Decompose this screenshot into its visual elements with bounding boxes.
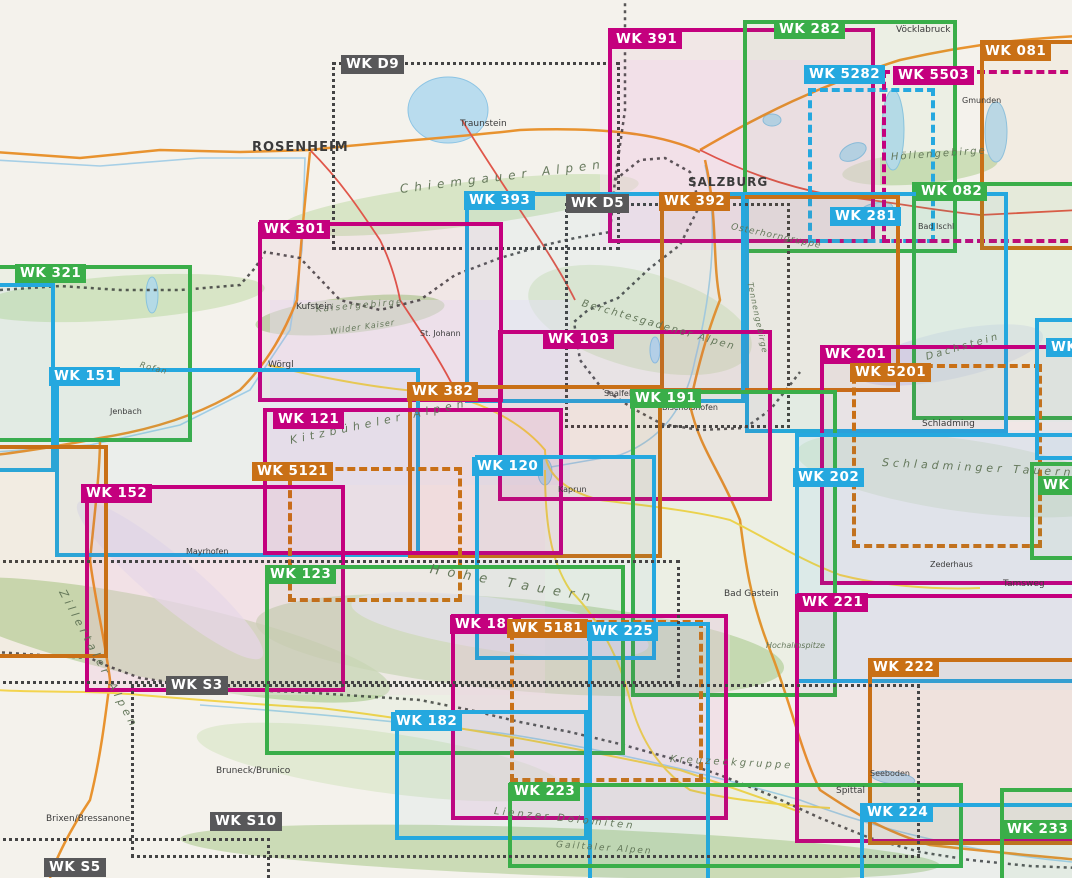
sheet-label-wk-121[interactable]: WK 121 xyxy=(273,410,344,429)
sheet-label-wk-151[interactable]: WK 151 xyxy=(49,367,120,386)
sheet-label-wk-223[interactable]: WK 223 xyxy=(509,782,580,801)
sheet-label-wk-392[interactable]: WK 392 xyxy=(659,192,730,211)
sheet-label-wk-d9[interactable]: WK D9 xyxy=(341,55,404,74)
sheet-label-wk-182[interactable]: WK 182 xyxy=(391,712,462,731)
city-label-jenbach: Jenbach xyxy=(110,407,142,416)
sheet-label-wk-224[interactable]: WK 224 xyxy=(862,803,933,822)
sheet-label-wk-082[interactable]: WK 082 xyxy=(916,182,987,201)
city-label-kaprun: Kaprun xyxy=(558,485,587,494)
city-label-v-cklabruck: Vöcklabruck xyxy=(896,25,950,35)
sheet-label-wk-201[interactable]: WK 201 xyxy=(820,345,891,364)
sheet-label-wk-321[interactable]: WK 321 xyxy=(15,264,86,283)
city-label-gmunden: Gmunden xyxy=(962,96,1001,105)
city-label-schladming: Schladming xyxy=(922,419,975,429)
city-label-seeboden: Seeboden xyxy=(870,769,910,778)
city-label-tamsweg: Tamsweg xyxy=(1003,579,1045,589)
city-label-rosenheim: ROSENHEIM xyxy=(252,140,349,155)
sheet-label-wk-281[interactable]: WK 281 xyxy=(830,207,901,226)
sheet-label-wk-s3[interactable]: WK S3 xyxy=(166,676,228,695)
city-label-kufstein: Kufstein xyxy=(296,302,332,312)
sheet-box-partial-left-cyan[interactable] xyxy=(0,283,55,472)
sheet-label-wk-152[interactable]: WK 152 xyxy=(81,484,152,503)
sheet-label-wk-301[interactable]: WK 301 xyxy=(259,220,330,239)
map-stage: ROSENHEIMSALZBURGTraunsteinVöcklabruckGm… xyxy=(0,0,1072,878)
city-label-mayrhofen: Mayrhofen xyxy=(186,547,228,556)
city-label-brixen-bressanone: Brixen/Bressanone xyxy=(46,814,130,824)
sheet-overlay: ROSENHEIMSALZBURGTraunsteinVöcklabruckGm… xyxy=(0,0,1072,878)
sheet-label-wk-s10[interactable]: WK S10 xyxy=(210,812,282,831)
region-label-hochalmspitze: Hochalmspitze xyxy=(766,641,825,650)
sheet-label-wk-233[interactable]: WK 233 xyxy=(1002,820,1072,839)
city-label-bad-ischl: Bad Ischl xyxy=(918,222,954,231)
sheet-box-partial-left-orange[interactable] xyxy=(0,445,108,658)
sheet-label-wk-123[interactable]: WK 123 xyxy=(265,565,336,584)
city-label-spittal: Spittal xyxy=(836,786,865,796)
city-label-traunstein: Traunstein xyxy=(460,119,507,129)
sheet-label-wk-225[interactable]: WK 225 xyxy=(587,622,658,641)
sheet-label-wk-393[interactable]: WK 393 xyxy=(464,191,535,210)
sheet-label-wk-191[interactable]: WK 191 xyxy=(630,389,701,408)
sheet-label-wk-5503[interactable]: WK 5503 xyxy=(893,66,974,85)
sheet-label-wk-5121[interactable]: WK 5121 xyxy=(252,462,333,481)
city-label-bruneck-brunico: Bruneck/Brunico xyxy=(216,766,290,776)
sheet-label-wk-2-right-upper[interactable]: WK 2 xyxy=(1046,338,1072,357)
sheet-label-wk-120[interactable]: WK 120 xyxy=(472,457,543,476)
sheet-label-wk-5201[interactable]: WK 5201 xyxy=(850,363,931,382)
sheet-box-wk-s5[interactable] xyxy=(0,838,270,878)
city-label-zederhaus: Zederhaus xyxy=(930,560,973,569)
city-label-st-johann: St. Johann xyxy=(420,329,461,338)
city-label-w-rgl: Wörgl xyxy=(268,360,294,370)
sheet-label-wk-s5[interactable]: WK S5 xyxy=(44,858,106,877)
sheet-label-wk-391[interactable]: WK 391 xyxy=(611,30,682,49)
sheet-label-wk-5181[interactable]: WK 5181 xyxy=(507,619,588,638)
sheet-label-wk-202[interactable]: WK 202 xyxy=(793,468,864,487)
sheet-label-wk-222[interactable]: WK 222 xyxy=(868,658,939,677)
sheet-label-wk-2-right-lower[interactable]: WK 2 xyxy=(1038,476,1072,495)
sheet-label-wk-103[interactable]: WK 103 xyxy=(543,330,614,349)
sheet-label-wk-282[interactable]: WK 282 xyxy=(774,20,845,39)
sheet-label-wk-382[interactable]: WK 382 xyxy=(407,382,478,401)
sheet-label-wk-5282[interactable]: WK 5282 xyxy=(804,65,885,84)
sheet-label-wk-d5[interactable]: WK D5 xyxy=(566,194,629,213)
city-label-salzburg: SALZBURG xyxy=(688,175,768,189)
sheet-label-wk-081[interactable]: WK 081 xyxy=(980,42,1051,61)
sheet-label-wk-221[interactable]: WK 221 xyxy=(797,593,868,612)
city-label-bad-gastein: Bad Gastein xyxy=(724,589,779,599)
